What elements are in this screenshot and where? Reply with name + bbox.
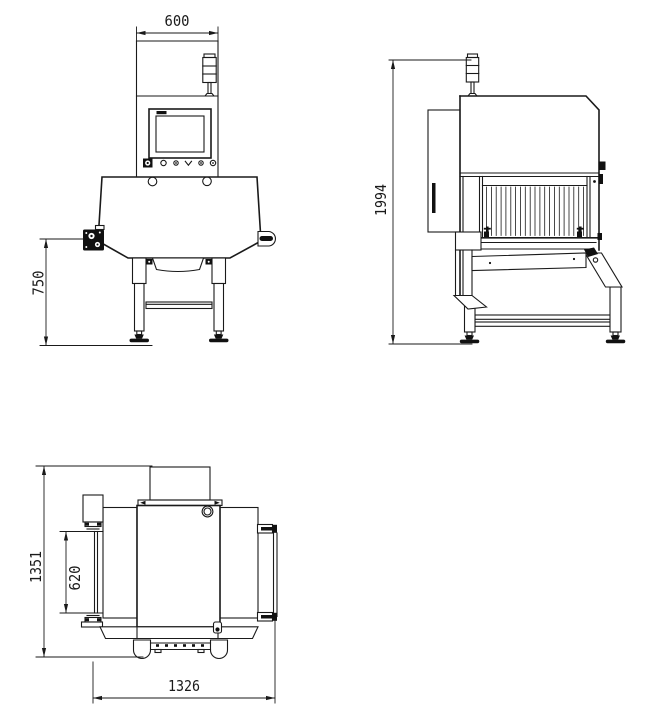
rear-chute: [454, 296, 487, 310]
main-body-front: [98, 177, 261, 258]
head-top: [138, 467, 222, 506]
bearing-bracket-front: [83, 495, 103, 532]
leveling-foot: [130, 331, 150, 342]
drip-tray: [153, 258, 204, 272]
lower-frame-side: [454, 248, 625, 344]
monitor-screen: [156, 116, 204, 152]
front-width-label: 600: [165, 12, 190, 30]
panel-button: [161, 160, 166, 165]
outfeed-wing: [220, 508, 258, 619]
signal-tower-light: [203, 54, 216, 96]
door-handle-slot: [432, 183, 436, 213]
xray-curtain-strips: [480, 177, 591, 238]
top-belt-width-label: 620: [66, 566, 84, 591]
caster-foot: [134, 640, 151, 659]
front-view: 600: [30, 12, 276, 346]
outfeed-roller-nose: [258, 232, 275, 247]
top-belt-width-dimension: 620: [60, 532, 103, 614]
rear-cabinet: [428, 110, 460, 232]
infeed-drive-bracket: [83, 226, 104, 251]
angled-strut: [585, 253, 622, 287]
caster-feet-top: [134, 640, 228, 659]
top-depth-label: 1351: [27, 551, 45, 583]
display-monitor: [149, 109, 211, 158]
main-body-top: [137, 506, 220, 628]
monitor-brand-label: [157, 111, 167, 114]
side-view: 1994: [372, 54, 625, 344]
support-leg: [610, 287, 621, 332]
top-length-label: 1326: [168, 677, 200, 695]
support-frame-front: [130, 258, 229, 342]
caster-foot: [211, 640, 228, 659]
support-leg: [212, 258, 226, 284]
front-conveyor-height-label: 750: [30, 271, 48, 296]
top-view: 1351 620 1326: [27, 466, 277, 703]
tension-bolt-back: [258, 613, 278, 622]
support-leg: [133, 258, 147, 284]
bearing-bracket-back: [82, 613, 104, 627]
cross-beam: [146, 302, 212, 309]
connector-box: [599, 162, 606, 171]
leveling-foot: [209, 331, 229, 342]
drawing-page: 600: [0, 0, 650, 724]
side-height-label: 1994: [372, 184, 390, 216]
cross-rail: [475, 322, 611, 326]
leveling-foot: [460, 332, 480, 343]
motor-box: [456, 232, 482, 250]
infeed-wing: [103, 508, 137, 619]
key-switch-icon: [185, 161, 191, 165]
lower-cover-panel: [472, 253, 586, 271]
connector-box: [599, 174, 604, 184]
front-width-dimension: 600: [137, 12, 219, 41]
cross-rail: [475, 315, 611, 319]
machine-three-view-drawing: 600: [0, 0, 650, 724]
control-panel-buttons: [143, 159, 216, 168]
leveling-foot: [606, 332, 626, 343]
tension-bolt-front: [258, 525, 278, 534]
